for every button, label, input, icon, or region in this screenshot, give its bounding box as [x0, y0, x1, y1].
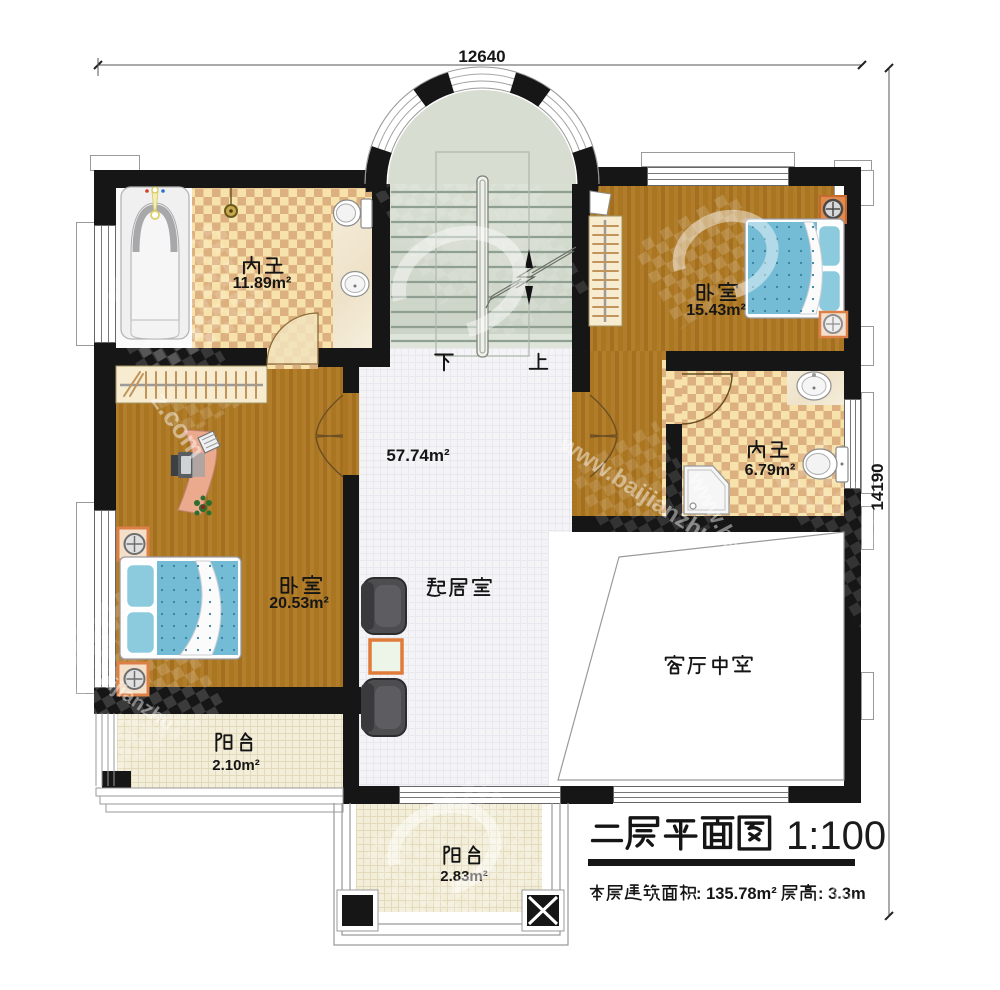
svg-text:20.53m²: 20.53m²	[269, 595, 329, 612]
svg-text:12640: 12640	[458, 47, 505, 66]
svg-text:: 135.78m²: : 135.78m²	[696, 885, 777, 903]
svg-text:57.74m²: 57.74m²	[386, 446, 450, 465]
svg-text:11.89m²: 11.89m²	[233, 275, 292, 292]
svg-text:ianzhu.com: ianzhu.com	[825, 878, 933, 963]
svg-text:6.79m²: 6.79m²	[745, 462, 796, 479]
svg-text:14190: 14190	[868, 463, 887, 510]
svg-text:1:100: 1:100	[786, 814, 886, 858]
svg-text:15.43m²: 15.43m²	[686, 302, 746, 319]
svg-text:2.10m²: 2.10m²	[212, 757, 260, 774]
